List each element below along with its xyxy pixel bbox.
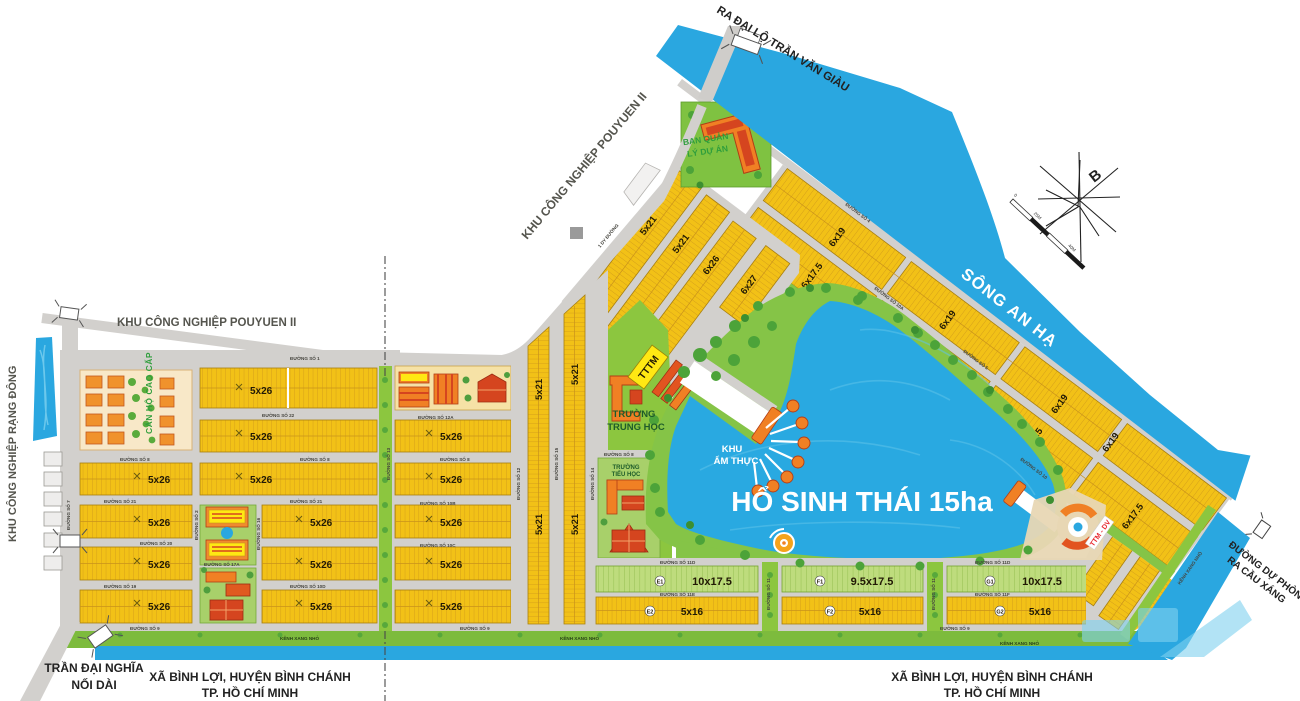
svg-text:XÃ BÌNH LỢI, HUYỆN BÌNH CHÁNH: XÃ BÌNH LỢI, HUYỆN BÌNH CHÁNH [891, 669, 1093, 684]
svg-text:ĐƯỜNG SỐ 10D: ĐƯỜNG SỐ 10D [290, 582, 326, 589]
svg-text:KHU CÔNG NGHIỆP POUYUEN II: KHU CÔNG NGHIỆP POUYUEN II [117, 316, 296, 329]
svg-text:ĐƯỜNG SỐ 11: ĐƯỜNG SỐ 11 [929, 578, 936, 610]
svg-text:ĐƯỜNG SỐ 8: ĐƯỜNG SỐ 8 [120, 455, 150, 462]
svg-text:NỐI DÀI: NỐI DÀI [71, 677, 116, 692]
svg-text:ĐƯỜNG SỐ 17A: ĐƯỜNG SỐ 17A [204, 560, 240, 567]
svg-text:ĐƯỜNG SỐ 9: ĐƯỜNG SỐ 9 [940, 624, 970, 631]
svg-text:5x16: 5x16 [1029, 607, 1052, 618]
svg-text:ĐƯỜNG SỐ 15: ĐƯỜNG SỐ 15 [552, 447, 559, 480]
svg-text:E2: E2 [647, 610, 654, 616]
svg-text:ĐƯỜNG SỐ 12A: ĐƯỜNG SỐ 12A [418, 413, 454, 420]
svg-text:5x26: 5x26 [310, 560, 333, 571]
svg-text:ĐƯỜNG SỐ 21: ĐƯỜNG SỐ 21 [290, 497, 323, 504]
svg-text:5x26: 5x26 [250, 386, 273, 397]
svg-text:KHU CÔNG NGHIỆP RẠNG ĐÔNG: KHU CÔNG NGHIỆP RẠNG ĐÔNG [6, 366, 19, 542]
svg-text:G1: G1 [986, 580, 993, 586]
svg-text:ĐƯỜNG SỐ 9: ĐƯỜNG SỐ 9 [460, 624, 490, 631]
svg-text:XÃ BÌNH LỢI, HUYỆN BÌNH CHÁNH: XÃ BÌNH LỢI, HUYỆN BÌNH CHÁNH [149, 669, 351, 684]
svg-text:9.5x17.5: 9.5x17.5 [851, 576, 894, 588]
svg-text:ĐƯỜNG SỐ 19: ĐƯỜNG SỐ 19 [104, 582, 137, 589]
svg-text:KHU: KHU [722, 444, 743, 455]
svg-text:5x21: 5x21 [534, 513, 545, 535]
svg-text:E1: E1 [657, 580, 664, 586]
svg-text:ĐƯỜNG SỐ 14: ĐƯỜNG SỐ 14 [588, 467, 595, 500]
svg-text:5x26: 5x26 [148, 518, 171, 529]
svg-text:5x26: 5x26 [440, 432, 463, 443]
svg-text:TRƯỜNG: TRƯỜNG [612, 463, 639, 471]
svg-text:TP. HỒ CHÍ MINH: TP. HỒ CHÍ MINH [944, 685, 1040, 700]
svg-text:ĐƯỜNG SỐ 10B: ĐƯỜNG SỐ 10B [420, 499, 456, 506]
svg-text:F1: F1 [817, 580, 823, 586]
svg-text:ĐƯỜNG SỐ 8: ĐƯỜNG SỐ 8 [300, 455, 330, 462]
svg-text:TRẦN ĐẠI NGHĨA: TRẦN ĐẠI NGHĨA [44, 660, 144, 675]
svg-text:KÊNH XANG NHỎ: KÊNH XANG NHỎ [280, 634, 319, 641]
svg-text:ĐƯỜNG SỐ 11F: ĐƯỜNG SỐ 11F [975, 590, 1010, 597]
svg-text:TRUNG HỌC: TRUNG HỌC [607, 422, 665, 433]
svg-text:ĐƯỜNG SỐ 9: ĐƯỜNG SỐ 9 [130, 624, 160, 631]
svg-text:ĐƯỜNG SỐ 21: ĐƯỜNG SỐ 21 [104, 497, 137, 504]
svg-text:ĐƯỜNG SỐ 1: ĐƯỜNG SỐ 1 [290, 354, 320, 361]
svg-text:5x26: 5x26 [250, 475, 273, 486]
svg-text:5x26: 5x26 [250, 432, 273, 443]
svg-text:5x26: 5x26 [310, 602, 333, 613]
svg-text:ĐƯỜNG SỐ 10C: ĐƯỜNG SỐ 10C [420, 541, 456, 548]
svg-text:ĐƯỜNG SỐ 2: ĐƯỜNG SỐ 2 [192, 510, 199, 540]
svg-text:5x26: 5x26 [148, 560, 171, 571]
svg-text:5x26: 5x26 [440, 518, 463, 529]
svg-text:5x26: 5x26 [310, 518, 333, 529]
svg-text:F2: F2 [827, 610, 833, 616]
svg-text:5x26: 5x26 [148, 475, 171, 486]
svg-text:ĐƯỜNG SỐ 16: ĐƯỜNG SỐ 16 [254, 517, 261, 550]
svg-text:5x21: 5x21 [570, 513, 581, 535]
svg-text:5x16: 5x16 [681, 607, 704, 618]
svg-text:ĐƯỜNG SỐ 12: ĐƯỜNG SỐ 12 [514, 467, 521, 500]
svg-text:CĂN HỘ CAO CẤP: CĂN HỘ CAO CẤP [143, 352, 154, 434]
svg-text:ĐƯỜNG SỐ 7: ĐƯỜNG SỐ 7 [64, 500, 71, 530]
svg-text:ĐƯỜNG SỐ 11D: ĐƯỜNG SỐ 11D [975, 558, 1011, 565]
svg-text:ĐƯỜNG SỐ 11E: ĐƯỜNG SỐ 11E [660, 590, 695, 597]
svg-text:5x26: 5x26 [440, 475, 463, 486]
svg-text:ĐƯỜNG SỐ 11D: ĐƯỜNG SỐ 11D [660, 558, 696, 565]
svg-text:5x16: 5x16 [859, 607, 882, 618]
svg-text:TIỂU HỌC: TIỂU HỌC [612, 471, 641, 478]
svg-text:TP. HỒ CHÍ MINH: TP. HỒ CHÍ MINH [202, 685, 298, 700]
svg-text:ẨM THỰC: ẨM THỰC [714, 455, 759, 467]
svg-text:5x21: 5x21 [534, 378, 545, 400]
svg-text:5x26: 5x26 [440, 560, 463, 571]
svg-text:10x17.5: 10x17.5 [1022, 576, 1062, 588]
svg-text:5x21: 5x21 [570, 363, 581, 385]
svg-text:ĐƯỜNG SỐ 22: ĐƯỜNG SỐ 22 [262, 411, 295, 418]
svg-text:ĐƯỜNG SỐ 8: ĐƯỜNG SỐ 8 [604, 450, 634, 457]
svg-text:5x26: 5x26 [148, 602, 171, 613]
svg-text:G2: G2 [996, 610, 1003, 616]
svg-text:ĐƯỜNG SỐ 20: ĐƯỜNG SỐ 20 [140, 539, 173, 546]
svg-text:5x26: 5x26 [440, 602, 463, 613]
svg-text:ĐƯỜNG SỐ 13: ĐƯỜNG SỐ 13 [384, 447, 391, 480]
svg-text:KÊNH XANG NHỎ: KÊNH XANG NHỎ [1000, 639, 1039, 646]
svg-text:ĐƯỜNG SỐ 8: ĐƯỜNG SỐ 8 [440, 455, 470, 462]
svg-text:HỔ SINH THÁI 15ha: HỔ SINH THÁI 15ha [731, 486, 993, 517]
svg-text:TRƯỜNG: TRƯỜNG [613, 408, 656, 420]
svg-text:10x17.5: 10x17.5 [692, 576, 732, 588]
svg-text:ĐƯỜNG SỐ 11: ĐƯỜNG SỐ 11 [764, 578, 771, 610]
svg-text:KÊNH XANG NHỎ: KÊNH XANG NHỎ [560, 634, 599, 641]
